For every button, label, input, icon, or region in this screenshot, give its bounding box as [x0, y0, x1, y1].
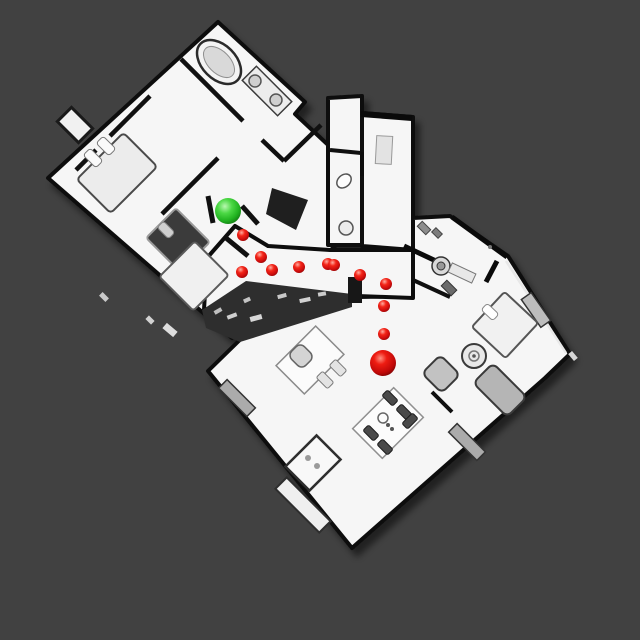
stove-burner-2: [314, 463, 320, 469]
waypoint-7: [328, 259, 340, 271]
entry-mat: [375, 136, 392, 165]
waypoint-3: [266, 264, 278, 276]
plate-dot-1: [386, 423, 390, 427]
wall-entry-door: [361, 114, 412, 118]
waypoint-5: [293, 261, 305, 273]
goal-marker: [370, 350, 396, 376]
waypoint-11: [378, 328, 390, 340]
waypoint-8: [354, 269, 366, 281]
wc-sink: [339, 221, 353, 235]
start-marker: [215, 198, 241, 224]
map-stage: [0, 0, 640, 640]
waypoint-4: [236, 266, 248, 278]
door-knob: [488, 245, 492, 249]
sink-1: [249, 75, 261, 87]
map-canvas: [0, 0, 640, 640]
waypoint-10: [378, 300, 390, 312]
stove-burner-1: [305, 455, 311, 461]
round-table-dot: [472, 354, 476, 358]
waypoint-9: [380, 278, 392, 290]
washer-inner: [437, 262, 445, 270]
plate-dot-2: [390, 427, 394, 431]
sink-2: [270, 94, 282, 106]
waypoint-2: [255, 251, 267, 263]
waypoint-1: [237, 229, 249, 241]
floor-entry-corridor: [362, 113, 413, 250]
